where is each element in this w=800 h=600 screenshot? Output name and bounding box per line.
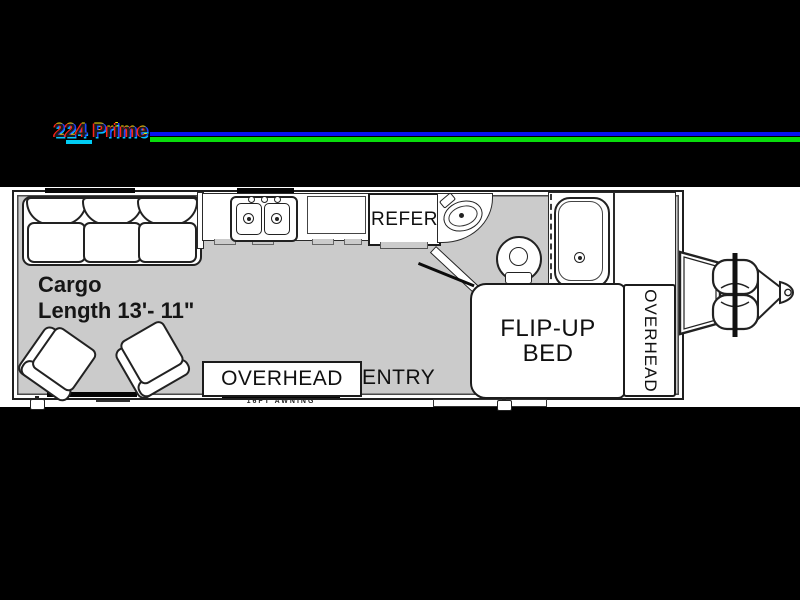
refrigerator-vent	[380, 242, 428, 249]
title-underline-green	[150, 137, 800, 142]
floorplan-page: { "header": { "model_title": "224 Prime"…	[0, 0, 800, 600]
tub-drain-icon	[574, 252, 585, 263]
shower-curtain	[550, 194, 552, 289]
awning-arm	[96, 400, 130, 402]
sofa-seat-cushion	[27, 222, 86, 263]
cargo-length-note: Cargo Length 13'- 11"	[38, 272, 194, 324]
cooktop	[307, 196, 366, 234]
awning-label: 16FT AWNING	[226, 398, 336, 405]
overhead-rear-label: OVERHEAD	[221, 367, 343, 391]
entry-step	[433, 399, 547, 407]
overhead-cabinet-front: OVERHEAD	[623, 284, 676, 397]
refrigerator-label: REFER	[371, 209, 438, 231]
sink-drain-icon	[243, 213, 254, 224]
sink-drain-icon	[271, 213, 282, 224]
cargo-line1: Cargo	[38, 272, 194, 298]
faucet-knob-icon	[274, 196, 281, 203]
sofa	[22, 196, 202, 266]
cargo-line2: Length 13'- 11"	[38, 298, 194, 324]
bed-label-line2: BED	[523, 341, 574, 366]
kitchen-sink	[230, 196, 298, 242]
window-top-left	[45, 188, 135, 193]
bathtub-inner	[558, 201, 603, 281]
flip-up-bed: FLIP-UP BED	[470, 283, 626, 399]
hitch-assembly-icon	[676, 238, 798, 354]
cabinet-tab	[344, 239, 362, 245]
faucet-knob-icon	[248, 196, 255, 203]
faucet-knob-icon	[261, 196, 268, 203]
entry-label: ENTRY	[362, 366, 435, 390]
cabinet-tab	[312, 239, 334, 245]
sofa-seat-cushion	[83, 222, 142, 263]
stabilizer-jack-icon	[30, 399, 45, 410]
overhead-front-label: OVERHEAD	[640, 289, 660, 392]
title-underline-blue	[150, 132, 800, 136]
bed-label-line1: FLIP-UP	[500, 316, 596, 341]
toilet-bowl-inner	[509, 247, 528, 266]
title-underline-cyan	[66, 140, 92, 144]
bath-sink-drain-icon	[459, 213, 464, 218]
refrigerator: REFER	[368, 193, 441, 246]
front-closet	[614, 192, 676, 294]
overhead-cabinet-rear: OVERHEAD	[202, 361, 362, 397]
stabilizer-jack-icon	[497, 400, 512, 411]
sofa-seat-cushion	[138, 222, 197, 263]
